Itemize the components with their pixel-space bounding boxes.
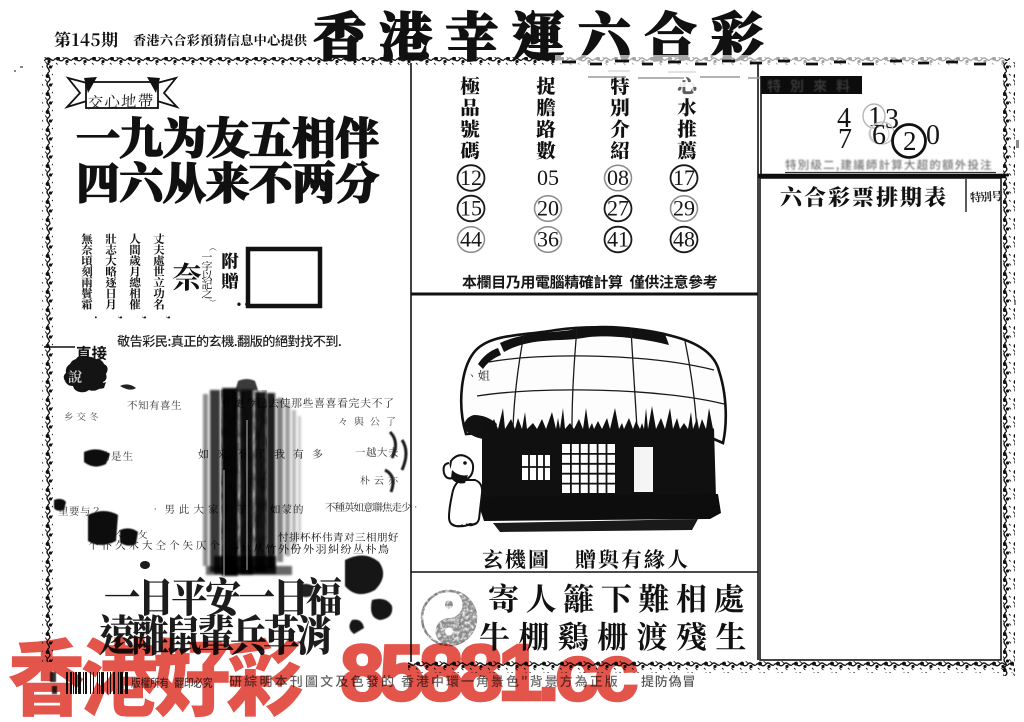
svg-text:29: 29 <box>673 196 695 221</box>
svg-text:48: 48 <box>673 227 695 252</box>
svg-text:85881.cc: 85881.cc <box>340 628 637 717</box>
svg-text:05: 05 <box>537 165 559 190</box>
svg-text:7: 7 <box>838 124 852 155</box>
svg-text:41: 41 <box>607 227 629 252</box>
svg-text:2: 2 <box>903 126 917 156</box>
svg-text:0: 0 <box>926 120 940 151</box>
svg-text:36: 36 <box>537 227 559 252</box>
svg-text:44: 44 <box>460 227 482 252</box>
svg-text:08: 08 <box>607 165 629 190</box>
svg-text:15: 15 <box>460 196 482 221</box>
svg-text:12: 12 <box>460 165 482 190</box>
svg-text:27: 27 <box>607 196 629 221</box>
svg-text:6: 6 <box>872 120 886 151</box>
svg-text:17: 17 <box>673 165 695 190</box>
svg-text:20: 20 <box>537 196 559 221</box>
